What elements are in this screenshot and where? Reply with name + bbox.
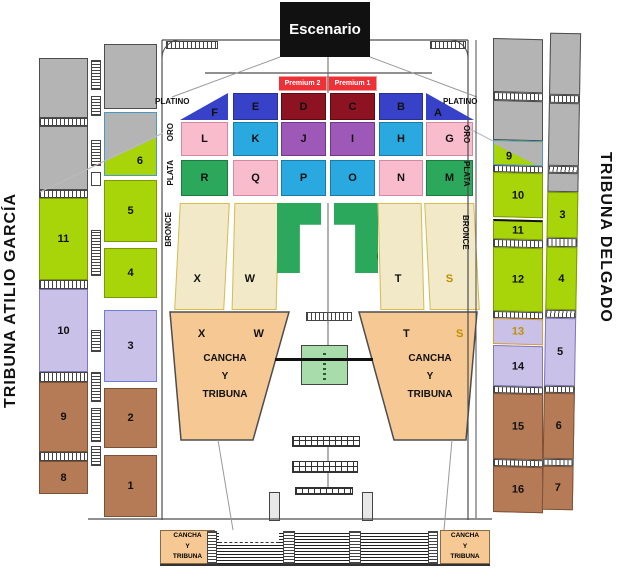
section-label: 5 — [557, 346, 563, 358]
section-label: 10 — [512, 189, 524, 201]
section-label: W — [244, 273, 255, 285]
section-right-12[interactable]: 12 — [493, 247, 543, 312]
section-bronce-V[interactable]: V — [277, 203, 321, 273]
left-outer-gray-2 — [39, 126, 88, 190]
stage: Escenario — [280, 2, 370, 57]
section-label: P — [300, 172, 307, 184]
section-right-10[interactable]: 10 — [493, 172, 543, 218]
section-right-outer-3[interactable]: 3 — [547, 192, 579, 239]
section-label: K — [252, 133, 260, 145]
section-left-3[interactable]: 3 — [104, 310, 157, 382]
stairs — [91, 140, 101, 166]
section-label: 4 — [558, 272, 564, 284]
section-label: 16 — [512, 483, 524, 495]
section-plata-R[interactable]: R — [181, 160, 228, 196]
right-outer-column: 3 4 5 6 7 — [541, 0, 583, 573]
stairs — [91, 372, 101, 402]
section-oro-L[interactable]: L — [181, 122, 228, 156]
section-label: 8 — [60, 472, 66, 484]
section-label: 4 — [127, 267, 133, 279]
lower-grid-2 — [292, 461, 358, 473]
stair-hatch — [39, 190, 88, 198]
bleacher-endcap-left — [207, 531, 217, 564]
section-label: S — [445, 273, 453, 285]
bleacher-notch — [219, 531, 279, 543]
section-oro-J[interactable]: J — [281, 122, 326, 156]
section-bronce-U[interactable]: U — [334, 203, 378, 273]
section-right-15[interactable]: 15 — [493, 393, 543, 460]
section-plata-Q[interactable]: Q — [233, 160, 278, 196]
section-label: V — [302, 252, 309, 264]
right-inner-gray-1 — [493, 38, 543, 93]
section-label: 11 — [58, 233, 70, 245]
section-label: A — [434, 107, 442, 119]
tier-label-platino-left: PLATINO — [155, 97, 190, 106]
section-left-2[interactable]: 2 — [104, 388, 157, 448]
section-label: CANCHA Y TRIBUNA — [450, 531, 479, 562]
lower-grid-3 — [295, 487, 353, 495]
section-label: L — [201, 133, 208, 145]
section-right-16[interactable]: 16 — [493, 466, 543, 513]
section-bronce-X[interactable]: X X — [174, 203, 230, 310]
section-plata-N[interactable]: N — [379, 160, 423, 196]
section-platino-B[interactable]: B — [379, 93, 423, 120]
mixer-booth — [301, 345, 348, 385]
venue-seating-map: Escenario Premium 2 Premium 1 PLATINO PL… — [0, 0, 628, 573]
section-oro-K[interactable]: K — [233, 122, 278, 156]
stair-hatch — [39, 452, 88, 461]
section-label: 2 — [127, 412, 133, 424]
section-label: G — [445, 133, 454, 145]
cancha-left-label: CANCHA Y TRIBUNA — [185, 350, 265, 404]
section-platino-C[interactable]: C — [330, 93, 375, 120]
tier-label-bronce-right: BRONCE — [461, 215, 470, 250]
stair-hatch — [39, 280, 88, 289]
section-label: 11 — [512, 224, 524, 236]
section-bronce-W[interactable]: W W — [232, 203, 280, 310]
lower-sightlines — [218, 440, 452, 530]
section-label: 10 — [57, 325, 69, 337]
section-plata-O[interactable]: O — [330, 160, 375, 196]
tier-label-plata-right: PLATA — [462, 161, 471, 186]
section-right-13[interactable]: 13 — [493, 318, 543, 345]
tribuna-left-title: TRIBUNA ATILIO GARCÍA — [2, 88, 20, 408]
section-label: 9 — [60, 411, 66, 423]
tier-label-oro-right: ORO — [462, 125, 471, 143]
stage-right-platform-hatch — [430, 41, 466, 49]
section-label: X — [193, 273, 201, 285]
section-label: X — [198, 328, 206, 340]
section-label: 6 — [137, 155, 143, 167]
section-right-9[interactable]: 9 — [493, 140, 543, 166]
section-label: H — [397, 133, 405, 145]
section-right-outer-7[interactable]: 7 — [542, 466, 574, 511]
section-right-14[interactable]: 14 — [493, 345, 543, 387]
section-left-5[interactable]: 5 — [104, 180, 157, 242]
section-label: D — [300, 101, 308, 113]
tier-label-platino-right: PLATINO — [443, 97, 478, 106]
section-label: B — [397, 101, 405, 113]
section-platino-E[interactable]: E — [233, 93, 278, 120]
right-inner-column: 9 10 11 12 13 14 15 16 — [493, 0, 545, 573]
section-plata-P[interactable]: P — [281, 160, 326, 196]
stage-left-platform-hatch — [166, 41, 218, 49]
section-label: 6 — [556, 420, 562, 432]
section-label: Q — [251, 172, 260, 184]
section-label: E — [252, 101, 259, 113]
section-label: 7 — [555, 482, 561, 494]
section-left-11[interactable]: 11 — [39, 198, 88, 280]
bottom-edge-line — [160, 564, 490, 566]
right-inner-gray-2 — [493, 100, 543, 141]
left-outer-gray-1 — [39, 58, 88, 118]
tier-label-bronce-left: BRONCE — [164, 212, 173, 247]
section-left-9[interactable]: 9 — [39, 382, 88, 452]
section-label: C — [349, 101, 357, 113]
section-label: N — [397, 172, 405, 184]
section-label: Premium 2 — [285, 80, 321, 87]
section-label: 14 — [512, 360, 524, 372]
section-label: T — [395, 273, 402, 285]
stairs — [91, 60, 101, 90]
section-label: Premium 1 — [335, 80, 371, 87]
stairs-landing — [91, 172, 101, 186]
section-label: 15 — [512, 420, 524, 432]
stair-hatch — [39, 118, 88, 126]
section-left-1[interactable]: 1 — [104, 455, 157, 517]
section-label: F — [211, 107, 218, 119]
section-left-10[interactable]: 10 — [39, 289, 88, 372]
field-divider-line — [275, 358, 373, 361]
section-bronce-T[interactable]: T T — [378, 203, 425, 310]
section-right-outer-4[interactable]: 4 — [545, 247, 577, 311]
stairs — [91, 96, 101, 116]
section-right-outer-5[interactable]: 5 — [544, 318, 576, 387]
section-oro-H[interactable]: H — [379, 122, 423, 156]
section-premium-1[interactable]: Premium 1 — [329, 77, 376, 90]
stairs — [91, 408, 101, 442]
section-cancha-bottom-right[interactable]: CANCHA Y TRIBUNA — [440, 530, 490, 564]
section-label: 3 — [559, 209, 565, 221]
section-label: 5 — [127, 205, 133, 217]
section-premium-2[interactable]: Premium 2 — [279, 77, 326, 90]
section-label: W — [253, 328, 264, 340]
section-label: O — [348, 172, 357, 184]
bleacher-divider-2 — [349, 531, 361, 564]
section-label: 12 — [512, 273, 524, 285]
section-label: S — [456, 328, 464, 340]
section-left-8[interactable]: 8 — [39, 461, 88, 494]
tower-right — [362, 492, 373, 521]
stair-hatch — [39, 372, 88, 382]
tower-left — [269, 492, 280, 521]
section-label: M — [445, 172, 454, 184]
section-label: 13 — [512, 325, 524, 337]
stage-label: Escenario — [289, 21, 361, 38]
section-left-6[interactable]: 6 — [104, 112, 157, 176]
section-label: 3 — [127, 340, 133, 352]
section-bronce-S[interactable]: S S — [424, 203, 480, 310]
tribuna-right-title: TRIBUNA DELGADO — [596, 152, 614, 412]
bleacher-divider-1 — [283, 531, 295, 564]
section-oro-I[interactable]: I — [330, 122, 375, 156]
section-platino-D[interactable]: D — [281, 93, 326, 120]
mixer-booth-microtext — [323, 350, 326, 380]
cancha-right-label: CANCHA Y TRIBUNA — [390, 350, 470, 404]
section-label: I — [351, 133, 354, 145]
section-label: CANCHA Y TRIBUNA — [173, 531, 202, 562]
right-outer-gray-2 — [548, 103, 580, 167]
lower-grid-1 — [292, 436, 360, 447]
stairs — [91, 330, 101, 352]
right-outer-gray-3 — [547, 173, 578, 193]
section-label: 1 — [127, 480, 133, 492]
stairs — [91, 446, 101, 466]
section-right-11[interactable]: 11 — [493, 219, 543, 240]
section-label: T — [403, 328, 410, 340]
stairs — [91, 230, 101, 276]
section-label: J — [300, 133, 306, 145]
bleacher-endcap-right — [428, 531, 438, 564]
section-label: R — [201, 172, 209, 184]
section-right-outer-6[interactable]: 6 — [543, 393, 575, 460]
right-outer-gray-1 — [549, 33, 581, 96]
tier-label-plata-left: PLATA — [166, 160, 175, 185]
section-left-4[interactable]: 4 — [104, 248, 157, 298]
left-inner-gray — [104, 44, 157, 109]
tier-label-oro-left: ORO — [166, 123, 175, 141]
section-label: 9 — [506, 150, 512, 162]
field-barrier-hatch — [306, 312, 352, 321]
